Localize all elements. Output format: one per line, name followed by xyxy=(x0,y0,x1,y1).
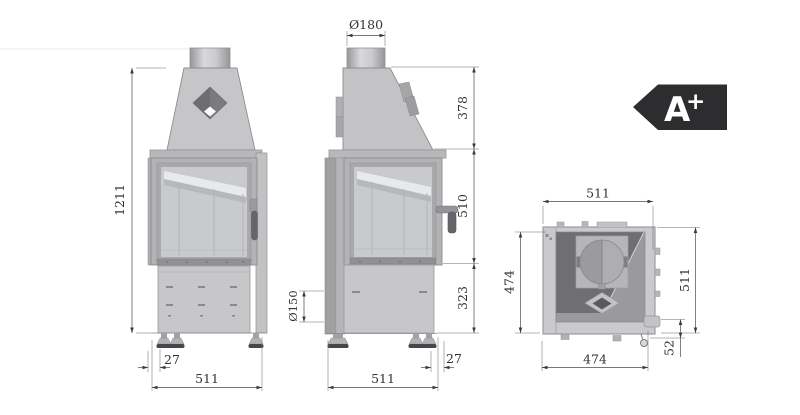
intake-diameter-label: Ø150 xyxy=(286,290,300,321)
flue-collar-side xyxy=(347,48,385,68)
base-cabinet-side xyxy=(344,265,434,333)
side-foot-inset-label: 27 xyxy=(446,351,462,366)
glass-door-front xyxy=(151,158,257,265)
top-width-label: 511 xyxy=(586,186,610,201)
front-foot-inset-label: 27 xyxy=(164,352,180,367)
top-overall-depth-label: 511 xyxy=(677,268,692,292)
flue-diameter-label: Ø180 xyxy=(349,17,383,32)
hood-flange-front xyxy=(150,150,262,158)
base-height-label: 323 xyxy=(455,286,470,310)
flue-collar-front xyxy=(190,48,230,68)
top-body-depth-label: 474 xyxy=(502,270,517,294)
right-side-panel xyxy=(256,153,267,333)
front-height-label: 1211 xyxy=(112,184,127,216)
flue-opening-top xyxy=(576,236,628,289)
hood-height-label: 378 xyxy=(455,96,470,120)
energy-class-plus: + xyxy=(686,89,705,115)
back-wall xyxy=(325,158,345,334)
door-height-label: 510 xyxy=(455,194,470,218)
base-cabinet-front xyxy=(158,266,250,333)
glass-door-side xyxy=(344,158,442,265)
damper-offset-label: 52 xyxy=(662,340,677,356)
side-depth-label: 511 xyxy=(371,371,395,386)
fireplace-drawing: 1211 27 511 Ø180 xyxy=(0,0,800,415)
technical-drawing-page: 1211 27 511 Ø180 xyxy=(0,0,800,415)
front-width-label: 511 xyxy=(195,371,219,386)
damper-bracket xyxy=(644,316,660,327)
top-base-width-label: 474 xyxy=(583,352,607,367)
hood-flange-side xyxy=(329,150,446,158)
